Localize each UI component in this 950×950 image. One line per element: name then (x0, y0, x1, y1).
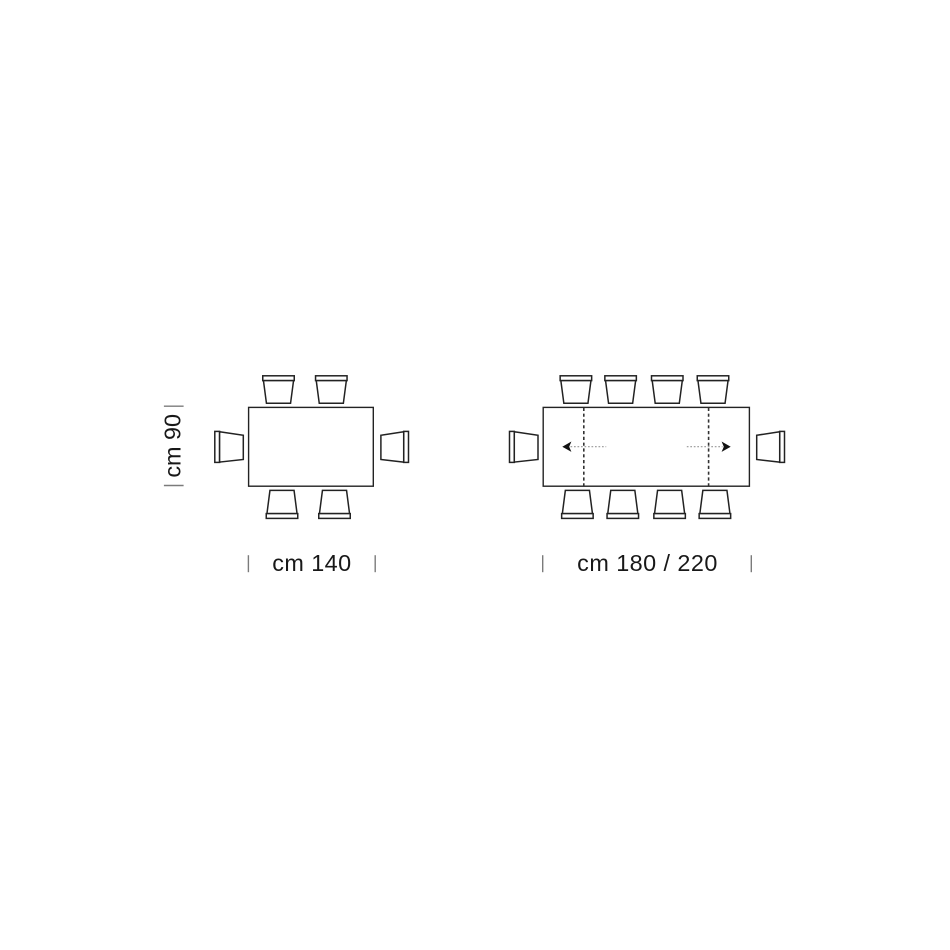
svg-text:cm 180 / 220: cm 180 / 220 (577, 550, 718, 576)
svg-text:cm 90: cm 90 (160, 414, 186, 478)
svg-text:cm 140: cm 140 (272, 550, 351, 576)
